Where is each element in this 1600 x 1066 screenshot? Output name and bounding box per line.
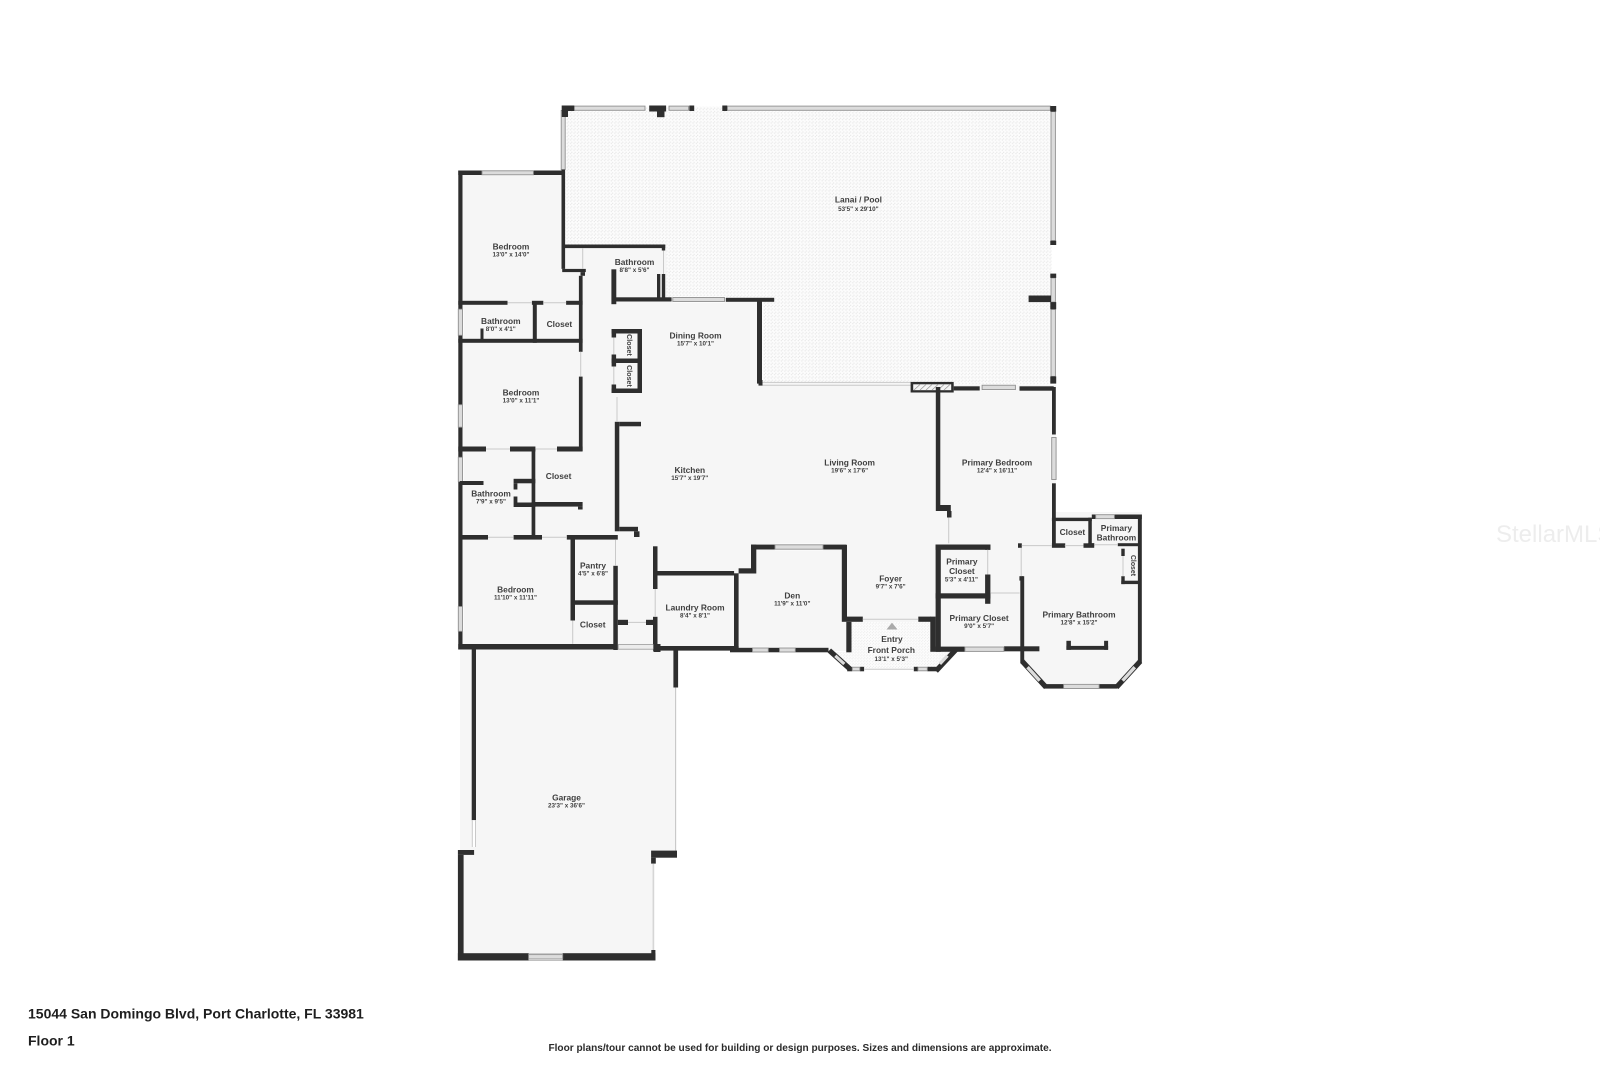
- svg-text:Closet: Closet: [949, 566, 975, 576]
- svg-text:Bathroom: Bathroom: [615, 257, 655, 267]
- svg-text:Primary Bedroom: Primary Bedroom: [962, 458, 1032, 468]
- svg-text:Den: Den: [784, 591, 800, 601]
- svg-text:23'3" x 36'6": 23'3" x 36'6": [548, 803, 585, 810]
- svg-text:11'10" x 11'11": 11'10" x 11'11": [494, 595, 537, 602]
- svg-text:Bathroom: Bathroom: [471, 489, 511, 499]
- svg-text:53'5" x 29'10": 53'5" x 29'10": [838, 206, 878, 213]
- svg-text:Foyer: Foyer: [879, 574, 903, 584]
- svg-text:4'5" x 6'8": 4'5" x 6'8": [578, 571, 608, 578]
- svg-text:Closet: Closet: [1060, 527, 1086, 537]
- svg-text:Kitchen: Kitchen: [674, 465, 705, 475]
- svg-text:Primary: Primary: [1101, 523, 1133, 533]
- svg-text:Closet: Closet: [625, 365, 633, 387]
- svg-text:Laundry Room: Laundry Room: [665, 603, 724, 613]
- svg-text:Bedroom: Bedroom: [493, 241, 530, 251]
- svg-text:Closet: Closet: [1129, 555, 1136, 577]
- svg-text:Closet: Closet: [580, 619, 606, 629]
- svg-text:Lanai / Pool: Lanai / Pool: [835, 194, 882, 204]
- svg-text:Closet: Closet: [546, 471, 572, 481]
- svg-text:13'0" x 11'1": 13'0" x 11'1": [503, 398, 540, 405]
- svg-text:Bedroom: Bedroom: [503, 388, 540, 398]
- svg-text:Living Room: Living Room: [824, 458, 875, 468]
- svg-text:11'9" x 11'0": 11'9" x 11'0": [774, 601, 810, 608]
- svg-text:5'3" x 4'11": 5'3" x 4'11": [945, 577, 978, 584]
- svg-text:Floor 1: Floor 1: [28, 1032, 75, 1048]
- svg-text:Primary Closet: Primary Closet: [950, 613, 1009, 623]
- svg-text:Pantry: Pantry: [580, 561, 606, 571]
- svg-text:Primary: Primary: [946, 557, 978, 567]
- svg-text:15044 San Domingo Blvd, Port C: 15044 San Domingo Blvd, Port Charlotte, …: [28, 1005, 364, 1021]
- svg-text:Entry: Entry: [881, 634, 903, 644]
- svg-text:12'4" x 16'11": 12'4" x 16'11": [977, 468, 1017, 475]
- svg-text:13'1" x 5'3": 13'1" x 5'3": [875, 656, 908, 663]
- svg-text:15'7" x 10'1": 15'7" x 10'1": [677, 341, 714, 348]
- svg-text:8'0" x 4'1": 8'0" x 4'1": [486, 326, 516, 333]
- svg-text:Front Porch: Front Porch: [868, 645, 915, 655]
- svg-text:12'8" x 15'2": 12'8" x 15'2": [1061, 620, 1098, 627]
- svg-text:Closet: Closet: [547, 319, 573, 329]
- svg-text:Bathroom: Bathroom: [481, 316, 521, 326]
- svg-text:19'6" x 17'6": 19'6" x 17'6": [831, 468, 868, 475]
- svg-text:7'9" x 9'5": 7'9" x 9'5": [476, 499, 506, 506]
- svg-text:9'7" x 7'6": 9'7" x 7'6": [876, 584, 906, 591]
- svg-text:8'8" x 5'6": 8'8" x 5'6": [620, 267, 650, 274]
- svg-text:13'0" x 14'0": 13'0" x 14'0": [493, 251, 530, 258]
- svg-text:Garage: Garage: [552, 793, 581, 803]
- svg-text:8'4" x 8'1": 8'4" x 8'1": [680, 613, 710, 620]
- svg-text:15'7" x 19'7": 15'7" x 19'7": [671, 475, 708, 482]
- svg-text:Dining Room: Dining Room: [669, 331, 721, 341]
- svg-text:Floor plans/tour cannot be use: Floor plans/tour cannot be used for buil…: [548, 1043, 1051, 1054]
- svg-text:Bedroom: Bedroom: [497, 585, 534, 595]
- svg-text:StellarMLS: StellarMLS: [1496, 521, 1600, 548]
- svg-text:Closet: Closet: [625, 334, 633, 356]
- svg-text:Primary Bathroom: Primary Bathroom: [1042, 610, 1115, 620]
- svg-text:Bathroom: Bathroom: [1097, 533, 1137, 543]
- svg-text:9'0" x 5'7": 9'0" x 5'7": [964, 623, 994, 630]
